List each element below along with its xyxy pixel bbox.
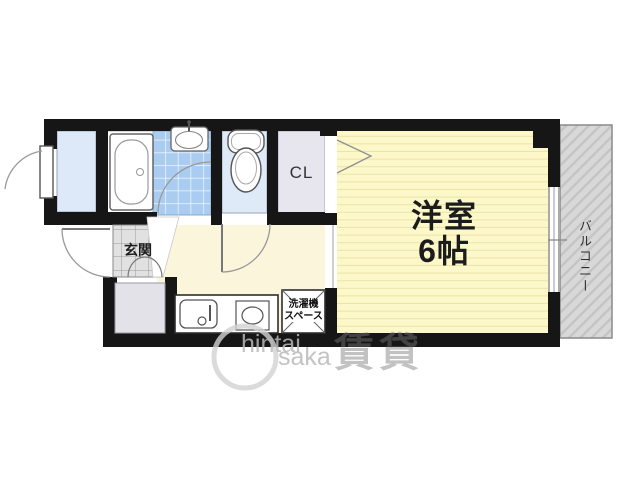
washer-space-label-line1: 洗濯機 (280, 299, 327, 311)
closet-door-opening (325, 136, 337, 213)
toilet-closet-wall (267, 119, 278, 225)
washer-space-label-line2: スペース (280, 311, 327, 323)
main-room-label-line1: 洋室 (344, 199, 544, 234)
closet-label: CL (278, 163, 325, 183)
sink-drain (198, 317, 206, 325)
shoe-alcove-floor (115, 283, 165, 333)
entry-door-leaf (40, 146, 53, 198)
balcony-label: バルコニー (564, 200, 594, 312)
left-wall-upper (44, 119, 57, 149)
bathtub (110, 134, 153, 210)
top-wall (44, 119, 560, 131)
kitchen-room-opening (325, 225, 337, 288)
floor-plan: 洋室 6帖 CL 玄関 洗濯機 スペース バルコニー hintai saka 賃… (0, 0, 640, 480)
kitchen-counter (175, 295, 278, 333)
genkan-door-swing-arc (62, 229, 110, 277)
toilet (228, 130, 264, 192)
hall-bath-wall (96, 125, 108, 218)
entry-door-swing-arc (5, 151, 42, 189)
main-room-label: 洋室 6帖 (344, 199, 544, 269)
washer-space-label: 洗濯機 スペース (280, 299, 327, 322)
entrance-label: 玄関 (111, 240, 165, 260)
main-room-label-line2: 6帖 (344, 234, 544, 269)
entry-hall-floor (57, 131, 96, 212)
closet-top-stub (320, 119, 337, 136)
stove-burner (242, 307, 263, 324)
washroom-toilet-wall (211, 119, 222, 225)
right-wall-upper (548, 119, 560, 187)
closet-bottom-wall (267, 212, 337, 225)
floor-plan-drawing (0, 0, 640, 480)
